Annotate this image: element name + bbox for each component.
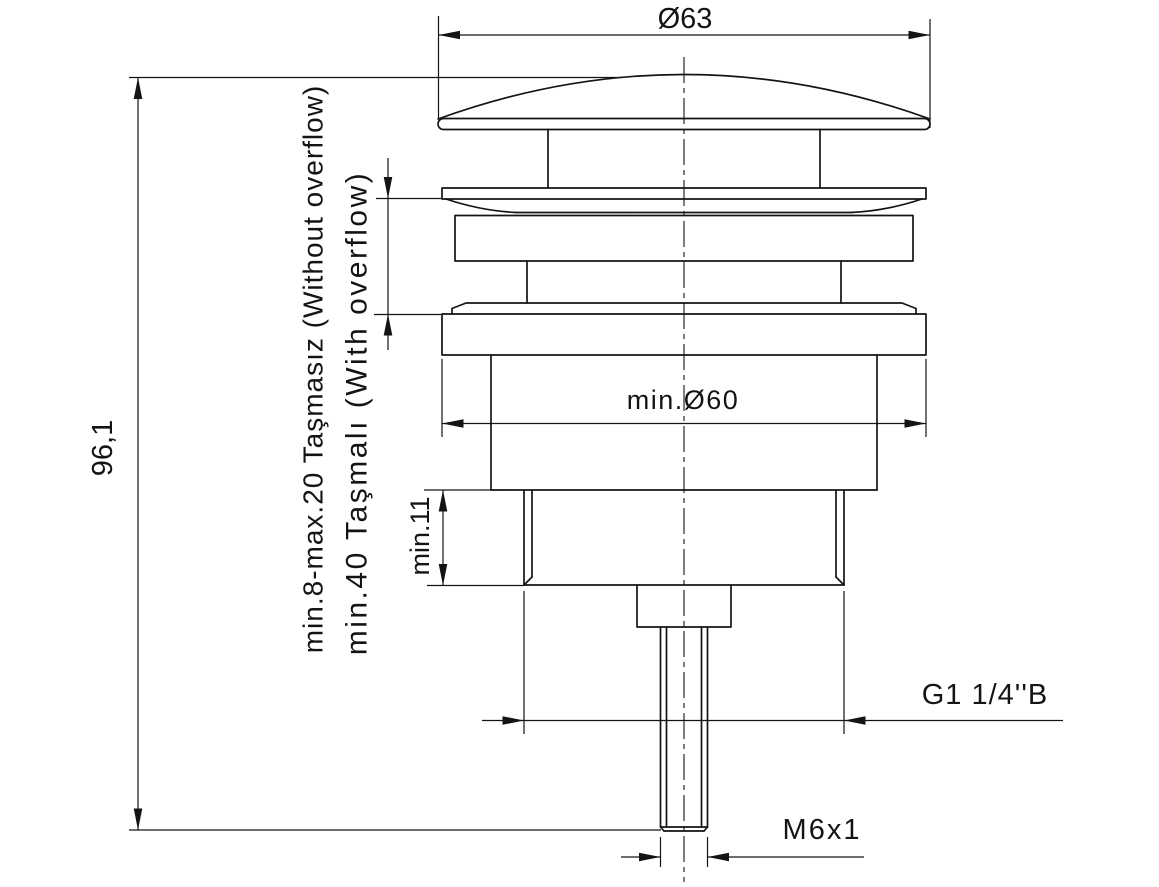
dim-label-outlet-thread: G1 1/4''B bbox=[922, 679, 1048, 711]
arrowhead bbox=[384, 177, 393, 199]
arrowhead bbox=[134, 78, 143, 100]
arrowhead bbox=[134, 809, 143, 831]
dim-label-rod-thread: M6x1 bbox=[783, 814, 862, 846]
dim-label-min-diameter: min.Ø60 bbox=[627, 385, 740, 415]
dim-label-with-overflow: min.40 Taşmalı (With overflow) bbox=[341, 171, 374, 656]
dim-label-overall-height: 96,1 bbox=[87, 420, 119, 476]
dim-label-diameter-63: Ø63 bbox=[658, 3, 713, 35]
arrowhead bbox=[439, 31, 461, 40]
arrowhead bbox=[503, 716, 525, 725]
technical-drawing: Ø63 96,1 min.8-max.20 Taşmasız (Without … bbox=[0, 0, 1159, 887]
pipe-thread-chamfer-right bbox=[836, 577, 844, 585]
arrowhead bbox=[439, 564, 448, 586]
dim-outlet-thread: G1 1/4''B bbox=[482, 591, 1063, 734]
pipe-thread-chamfer-left bbox=[524, 577, 532, 585]
arrowhead bbox=[639, 853, 661, 862]
arrowhead bbox=[909, 31, 931, 40]
arrowhead bbox=[905, 419, 927, 428]
seal-taper-right bbox=[851, 199, 922, 213]
dim-overall-height: 96,1 bbox=[87, 78, 661, 831]
arrowhead bbox=[844, 716, 866, 725]
arrowhead bbox=[708, 853, 730, 862]
dim-min-thread-length: min.11 bbox=[405, 490, 524, 586]
dim-label-without-overflow: min.8-max.20 Taşmasız (Without overflow) bbox=[298, 85, 329, 654]
arrowhead bbox=[442, 419, 464, 428]
dim-label-min-11: min.11 bbox=[405, 496, 435, 575]
arrowhead bbox=[439, 490, 448, 512]
drawing-canvas: Ø63 96,1 min.8-max.20 Taşmasız (Without … bbox=[0, 0, 1159, 887]
seal-taper-left bbox=[446, 199, 517, 213]
arrowhead bbox=[384, 314, 393, 336]
dim-min-installation-diameter: min.Ø60 bbox=[442, 359, 926, 437]
dim-rod-thread: M6x1 bbox=[621, 814, 864, 867]
